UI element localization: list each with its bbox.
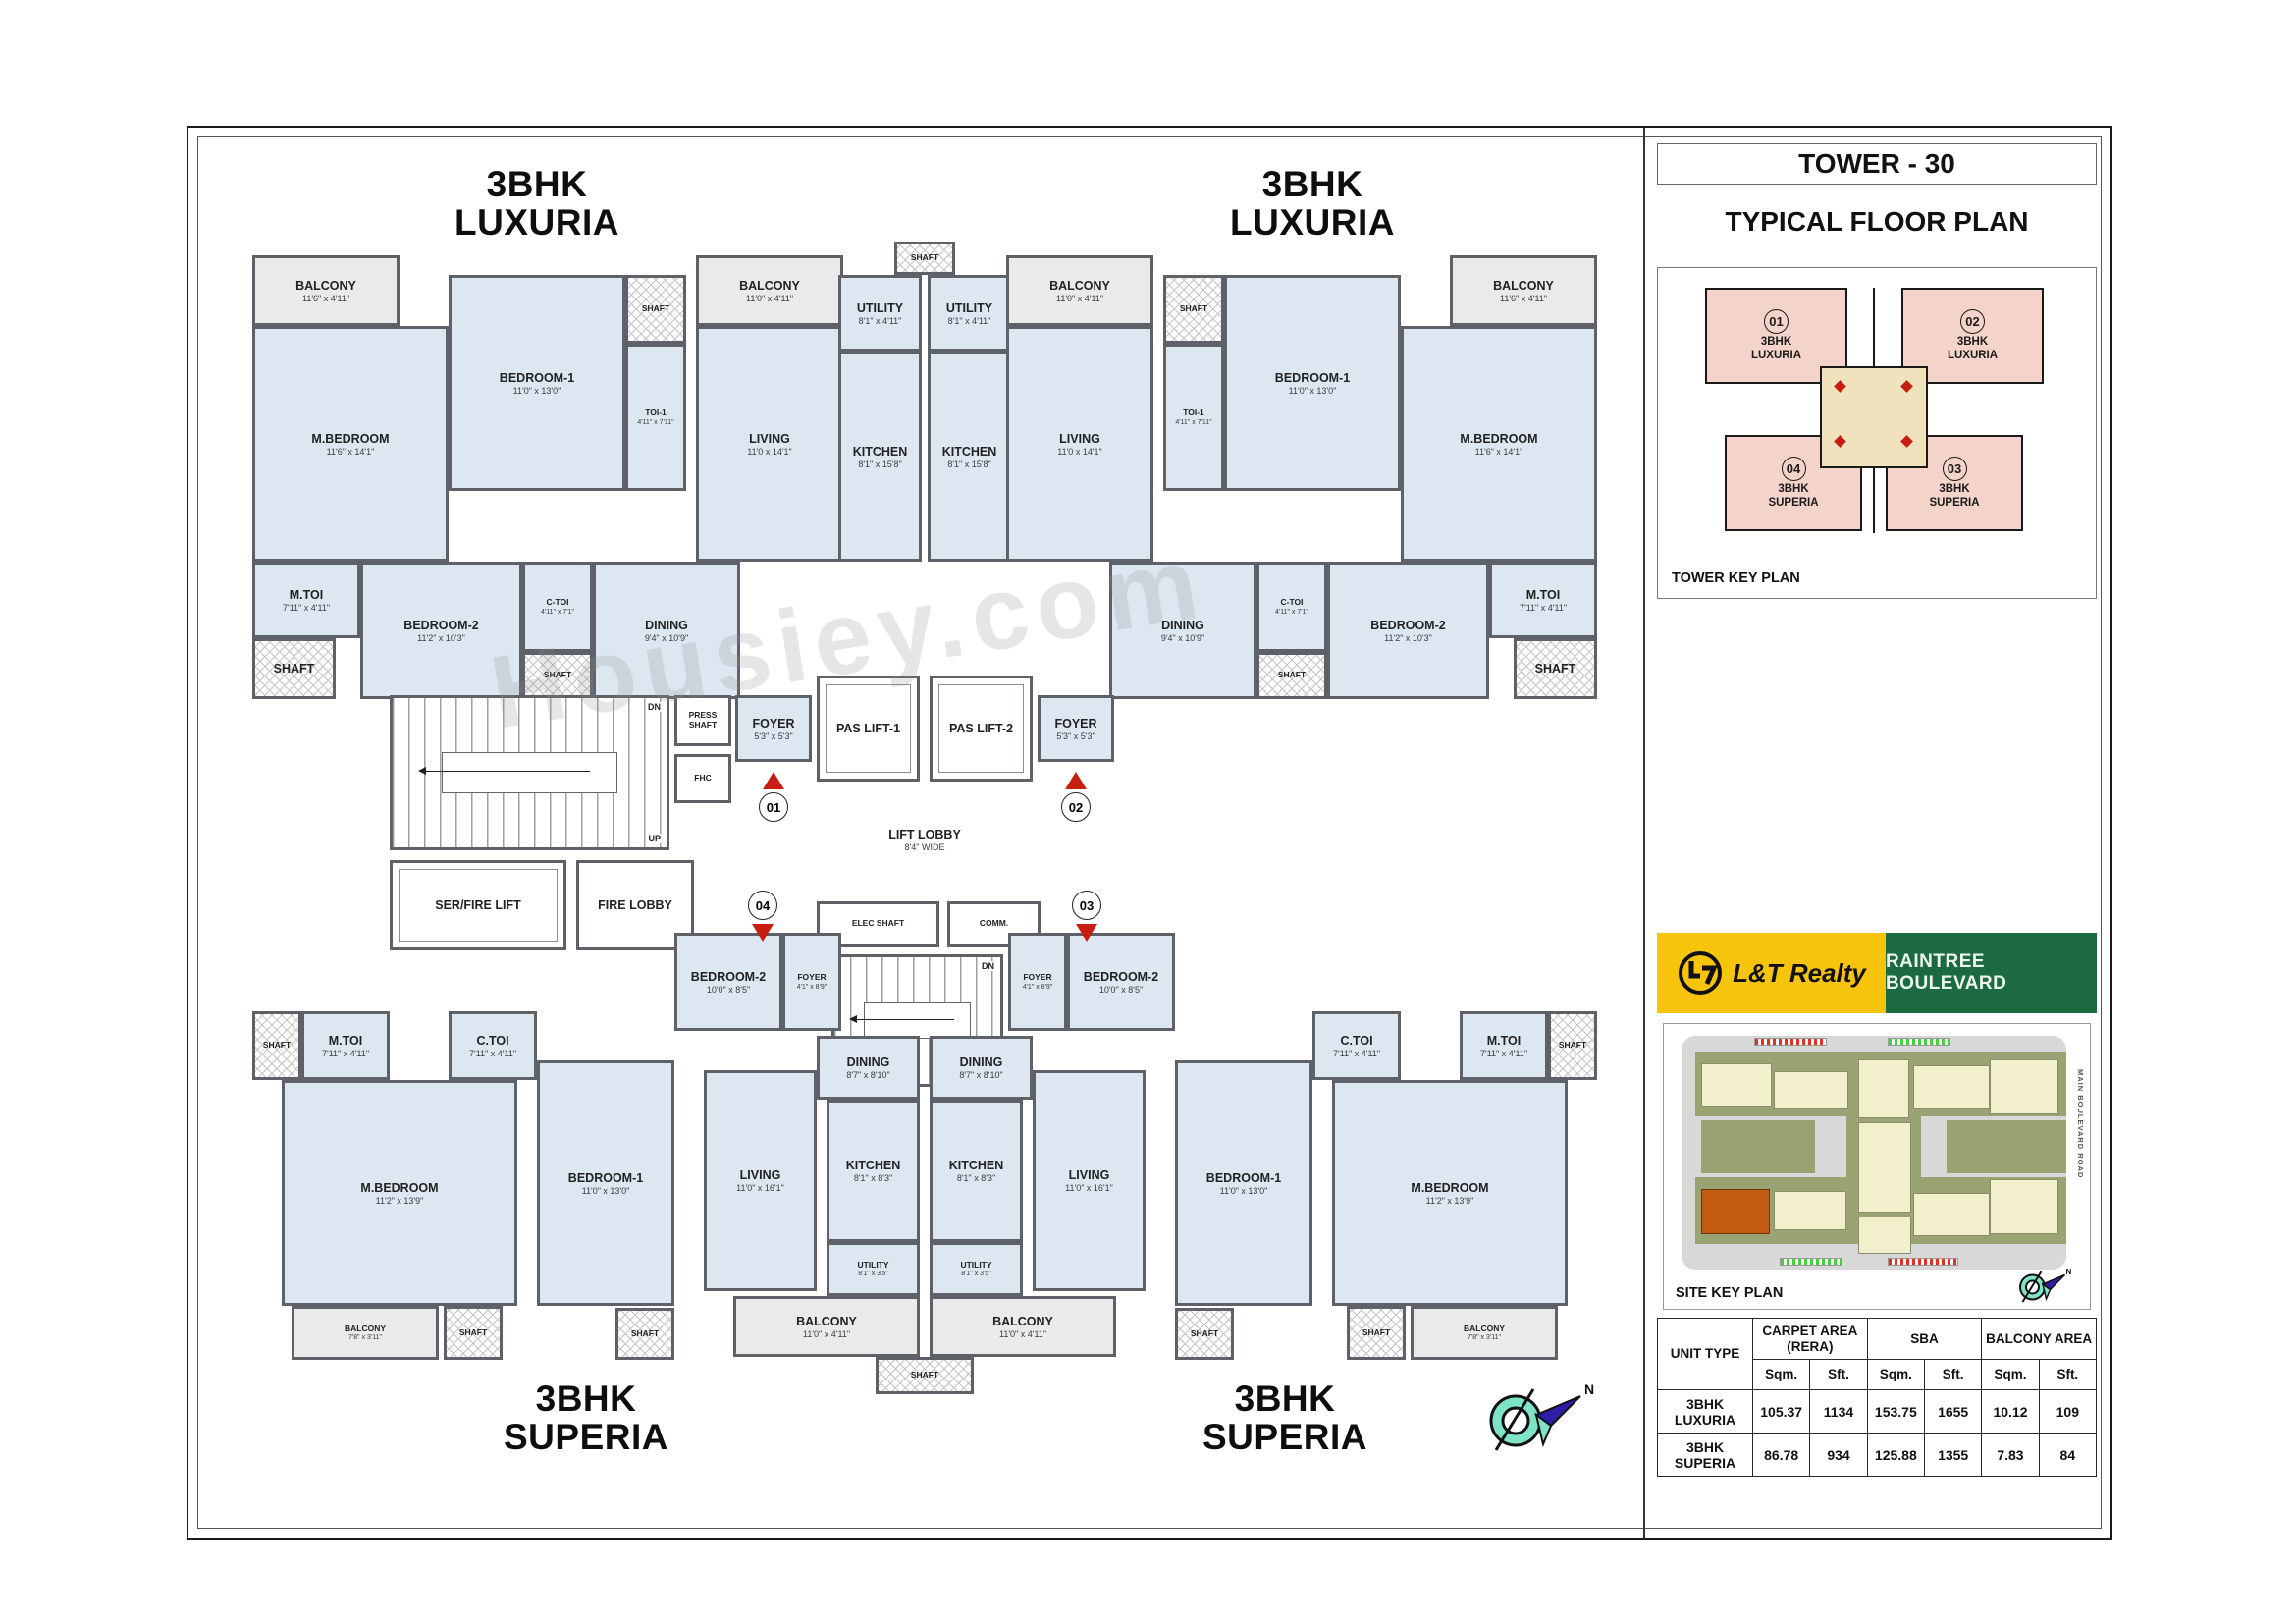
col-group-carpet-area-rera: CARPET AREA (RERA)	[1753, 1319, 1868, 1360]
room-utility: UTILITY8'1" x 4'11"	[838, 275, 922, 352]
site-green-bar	[1888, 1038, 1950, 1046]
site-key-plan-box: MAIN BOULEVARD ROAD SITE KEY PLAN N	[1663, 1023, 2091, 1310]
room-balcony: BALCONY11'6" x 4'11"	[252, 255, 400, 326]
site-tower	[1858, 1122, 1911, 1213]
room-m-toi: M.TOI7'11" x 4'11"	[1489, 562, 1597, 638]
room-m-toi: M.TOI7'11" x 4'11"	[1460, 1011, 1548, 1080]
unit-caption-4: 3BHK SUPERIA	[1202, 1380, 1367, 1456]
floorplan-canvas: Housiey.com N BALCONY11'6" x 4'11"M.BEDR…	[242, 157, 1607, 1492]
site-green-area	[1947, 1120, 2066, 1173]
entry-arrow-01	[763, 772, 784, 789]
key-plan-connector	[1873, 466, 1875, 533]
room-bedroom-2: BEDROOM-211'2" x 10'3"	[1327, 562, 1489, 699]
site-north-label: N	[2066, 1268, 2072, 1276]
unit-marker-01: 01	[759, 792, 788, 822]
room-m-toi: M.TOI7'11" x 4'11"	[301, 1011, 390, 1080]
room-balcony: BALCONY11'0" x 4'11"	[733, 1296, 920, 1357]
north-compass-icon: N	[1474, 1370, 1602, 1460]
tower-title-box: TOWER - 30	[1657, 143, 2097, 185]
north-label: N	[1584, 1381, 1594, 1397]
site-red-bar	[1888, 1258, 1958, 1266]
room-bedroom-1: BEDROOM-111'0" x 13'0"	[449, 275, 625, 491]
site-green-bar	[1780, 1258, 1842, 1266]
cell-value: 109	[2039, 1390, 2096, 1434]
room-pas-lift-2: PAS LIFT-2	[930, 676, 1033, 782]
room-shaft: SHAFT	[876, 1357, 974, 1394]
drawing-sheet: Housiey.com N BALCONY11'6" x 4'11"M.BEDR…	[187, 126, 2112, 1540]
room-m-bedroom: M.BEDROOM11'2" x 13'9"	[282, 1080, 517, 1306]
room-bedroom-1: BEDROOM-111'0" x 13'0"	[1175, 1060, 1312, 1306]
room-shaft: SHAFT	[1175, 1308, 1234, 1360]
room-shaft: SHAFT	[252, 638, 336, 699]
room-c-toi: C.TOI7'11" x 4'11"	[449, 1011, 537, 1080]
col-header-unit-type: UNIT TYPE	[1658, 1319, 1753, 1390]
unit-caption-1: 3BHK LUXURIA	[454, 165, 619, 242]
key-plan-core	[1820, 366, 1928, 468]
room-utility: UTILITY8'1" x 4'11"	[928, 275, 1011, 352]
site-compass-icon: N	[2011, 1262, 2076, 1307]
room-shaft: SHAFT	[894, 242, 955, 275]
room-press-shaft: PRESS SHAFT	[674, 695, 731, 746]
room-foyer: FOYER5'3" x 5'3"	[735, 695, 812, 762]
entry-arrow-02	[1065, 772, 1087, 789]
plan-title: TYPICAL FLOOR PLAN	[1657, 200, 2097, 243]
company-name: L&T Realty	[1733, 958, 1866, 989]
room-living: LIVING11'0" x 16'1"	[704, 1070, 817, 1291]
room-dining: DINING8'7" x 8'10"	[930, 1036, 1033, 1100]
site-tower	[1774, 1191, 1846, 1230]
room-foyer: FOYER5'3" x 5'3"	[1038, 695, 1114, 762]
cell-value: 10.12	[1982, 1390, 2039, 1434]
room-pas-lift-1: PAS LIFT-1	[817, 676, 920, 782]
cell-unit-type: 3BHK LUXURIA	[1658, 1390, 1753, 1434]
room-utility: UTILITY8'1" x 3'5"	[930, 1242, 1023, 1296]
room-c-toi: C.TOI7'11" x 4'11"	[1312, 1011, 1401, 1080]
cell-value: 1655	[1924, 1390, 1981, 1434]
room-shaft: SHAFT	[1514, 638, 1597, 699]
cell-value: 1134	[1810, 1390, 1867, 1434]
tower-key-plan-canvas: 013BHKLUXURIA023BHKLUXURIA043BHKSUPERIA0…	[1658, 268, 2096, 598]
tower-key-plan-box: 013BHKLUXURIA023BHKLUXURIA043BHKSUPERIA0…	[1657, 267, 2097, 599]
cell-value: 153.75	[1867, 1390, 1924, 1434]
col-group-sba: SBA	[1867, 1319, 1982, 1360]
col-subheader-sft: Sft.	[1810, 1360, 1867, 1390]
cell-value: 125.88	[1867, 1434, 1924, 1477]
room-shaft: SHAFT	[1347, 1306, 1406, 1360]
room-m-toi: M.TOI7'11" x 4'11"	[252, 562, 360, 638]
site-tower	[1913, 1193, 1990, 1236]
room-balcony: BALCONY11'0" x 4'11"	[930, 1296, 1116, 1357]
room-kitchen: KITCHEN8'1" x 8'3"	[827, 1100, 920, 1242]
unit-caption-2: 3BHK LUXURIA	[1230, 165, 1395, 242]
room-kitchen: KITCHEN8'1" x 15'8"	[928, 352, 1011, 562]
room-shaft: SHAFT	[1256, 652, 1327, 699]
room-fhc: FHC	[674, 754, 731, 803]
room-balcony: BALCONY11'0" x 4'11"	[1006, 255, 1153, 326]
site-tower	[1913, 1065, 1990, 1109]
site-green-area	[1701, 1120, 1815, 1173]
room-shaft: SHAFT	[1548, 1011, 1597, 1080]
room-utility: UTILITY8'1" x 3'5"	[827, 1242, 920, 1296]
cell-value: 7.83	[1982, 1434, 2039, 1477]
table-row: 3BHK LUXURIA105.371134153.75165510.12109	[1658, 1390, 2097, 1434]
room-bedroom-1: BEDROOM-111'0" x 13'0"	[1224, 275, 1401, 491]
cell-unit-type: 3BHK SUPERIA	[1658, 1434, 1753, 1477]
col-subheader-sft: Sft.	[1924, 1360, 1981, 1390]
table-row: 3BHK SUPERIA86.78934125.8813557.8384	[1658, 1434, 2097, 1477]
room-c-toi: C-TOI4'11" x 7'1"	[522, 562, 593, 652]
tower-title: TOWER - 30	[1798, 148, 1955, 180]
room-balcony: BALCONY7'8" x 3'11"	[292, 1306, 439, 1360]
room-kitchen: KITCHEN8'1" x 15'8"	[838, 352, 922, 562]
project-name: RAINTREE BOULEVARD	[1886, 951, 2097, 995]
room-shaft: SHAFT	[625, 275, 686, 344]
col-subheader-sft: Sft.	[2039, 1360, 2096, 1390]
cell-value: 1355	[1924, 1434, 1981, 1477]
unit-marker-02: 02	[1061, 792, 1091, 822]
room-bedroom-1: BEDROOM-111'0" x 13'0"	[537, 1060, 674, 1306]
unit-caption-3: 3BHK SUPERIA	[504, 1380, 668, 1456]
entry-arrow-03	[1076, 924, 1097, 942]
panel-divider	[1643, 128, 1645, 1538]
site-tower	[1990, 1179, 2058, 1234]
col-subheader-sqm: Sqm.	[1753, 1360, 1810, 1390]
lt-realty-banner: L&T Realty	[1657, 933, 1886, 1013]
room-living: LIVING11'0 x 14'1"	[1006, 326, 1153, 562]
room-shaft: SHAFT	[1163, 275, 1224, 344]
room-living: LIVING11'0 x 14'1"	[696, 326, 843, 562]
room-toi-1: TOI-14'11" x 7'11"	[625, 344, 686, 491]
room-balcony: BALCONY11'0" x 4'11"	[696, 255, 843, 326]
col-subheader-sqm: Sqm.	[1982, 1360, 2039, 1390]
room-bedroom-2: BEDROOM-210'0" x 8'5"	[674, 933, 782, 1031]
room-bedroom-2: BEDROOM-210'0" x 8'5"	[1067, 933, 1175, 1031]
site-tower-highlighted	[1701, 1189, 1770, 1234]
room-foyer: FOYER4'1" x 8'9"	[782, 933, 841, 1031]
room-toi-1: TOI-14'11" x 7'11"	[1163, 344, 1224, 491]
room-balcony: BALCONY11'6" x 4'11"	[1450, 255, 1597, 326]
room-dining: DINING8'7" x 8'10"	[817, 1036, 920, 1100]
room-shaft: SHAFT	[615, 1308, 674, 1360]
room-shaft: SHAFT	[522, 652, 593, 699]
room-living: LIVING11'0" x 16'1"	[1033, 1070, 1146, 1291]
room-shaft: SHAFT	[444, 1306, 503, 1360]
site-tower	[1774, 1071, 1848, 1109]
room-kitchen: KITCHEN8'1" x 8'3"	[930, 1100, 1023, 1242]
branding-banner: L&T Realty RAINTREE BOULEVARD	[1657, 933, 2097, 1013]
room-m-bedroom: M.BEDROOM11'6" x 14'1"	[1401, 326, 1597, 562]
tower-key-plan-label: TOWER KEY PLAN	[1672, 570, 1800, 586]
site-tower	[1701, 1063, 1772, 1107]
unit-marker-03: 03	[1072, 891, 1101, 920]
project-banner: RAINTREE BOULEVARD	[1886, 933, 2097, 1013]
room-bedroom-2: BEDROOM-211'2" x 10'3"	[360, 562, 522, 699]
site-tower	[1858, 1059, 1909, 1118]
unit-marker-04: 04	[748, 891, 777, 920]
room-c-toi: C-TOI4'11" x 7'1"	[1256, 562, 1327, 652]
site-tower	[1990, 1059, 2058, 1114]
room-m-bedroom: M.BEDROOM11'2" x 13'9"	[1332, 1080, 1568, 1306]
stair-arrow	[851, 1019, 954, 1020]
col-group-balcony-area: BALCONY AREA	[1982, 1319, 2097, 1360]
cell-value: 105.37	[1753, 1390, 1810, 1434]
room-balcony: BALCONY7'8" x 3'11"	[1411, 1306, 1558, 1360]
cell-value: 86.78	[1753, 1434, 1810, 1477]
cell-value: 84	[2039, 1434, 2096, 1477]
entry-arrow-04	[752, 924, 774, 942]
road-label: MAIN BOULEVARD ROAD	[2076, 1069, 2085, 1178]
room-ser-fire-lift: SER/FIRE LIFT	[390, 860, 566, 950]
room-dining: DINING9'4" x 10'9"	[1109, 562, 1256, 699]
lt-logo-icon	[1677, 949, 1724, 997]
site-key-plan-label: SITE KEY PLAN	[1676, 1285, 1783, 1301]
room-m-bedroom: M.BEDROOM11'6" x 14'1"	[252, 326, 449, 562]
page: { "header": { "tower": "TOWER - 30", "pl…	[0, 0, 2296, 1623]
stair-arrow	[420, 771, 590, 772]
room-shaft: SHAFT	[252, 1011, 301, 1080]
cell-value: 934	[1810, 1434, 1867, 1477]
site-red-bar	[1754, 1038, 1827, 1046]
room-foyer: FOYER4'1" x 8'9"	[1008, 933, 1067, 1031]
site-tower	[1858, 1217, 1911, 1254]
room-dining: DINING9'4" x 10'9"	[593, 562, 740, 699]
staircase: DNUP	[390, 695, 669, 850]
area-table-wrap: UNIT TYPECARPET AREA (RERA)SBABALCONY AR…	[1657, 1318, 2097, 1477]
col-subheader-sqm: Sqm.	[1867, 1360, 1924, 1390]
key-plan-connector	[1873, 288, 1875, 368]
area-table: UNIT TYPECARPET AREA (RERA)SBABALCONY AR…	[1657, 1318, 2097, 1477]
